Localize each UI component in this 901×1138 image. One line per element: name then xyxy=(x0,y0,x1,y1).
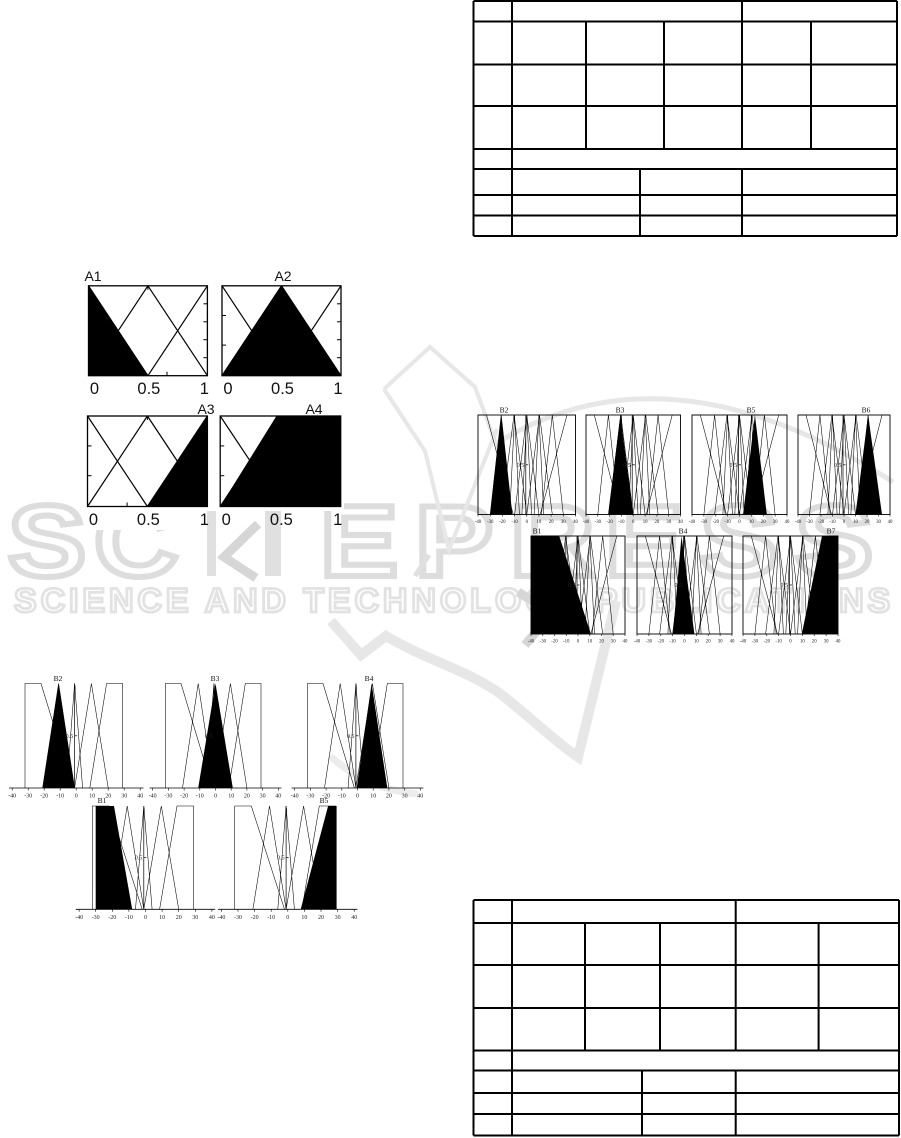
svg-text:B2: B2 xyxy=(500,406,509,415)
svg-text:-40: -40 xyxy=(634,640,641,645)
svg-text:0.5: 0.5 xyxy=(277,856,285,862)
svg-text:-40: -40 xyxy=(583,520,590,525)
svg-text:0.5: 0.5 xyxy=(675,583,683,589)
svg-text:1: 1 xyxy=(789,538,792,544)
svg-text:-20: -20 xyxy=(764,640,771,645)
svg-text:-20: -20 xyxy=(713,520,720,525)
svg-text:30: 30 xyxy=(561,520,566,525)
svg-text:-10: -10 xyxy=(511,520,518,525)
svg-text:-20: -20 xyxy=(251,915,259,921)
svg-text:-20: -20 xyxy=(499,520,506,525)
svg-text:30: 30 xyxy=(121,794,127,800)
svg-text:-10: -10 xyxy=(618,520,625,525)
svg-text:40: 40 xyxy=(137,794,143,800)
svg-text:30: 30 xyxy=(876,520,881,525)
svg-text:-40: -40 xyxy=(291,794,299,800)
svg-text:0.5: 0.5 xyxy=(66,734,74,740)
svg-text:B2: B2 xyxy=(54,674,63,683)
svg-text:-40: -40 xyxy=(528,640,535,645)
svg-text:1: 1 xyxy=(285,808,288,814)
svg-text:B1: B1 xyxy=(533,527,542,536)
svg-text:0: 0 xyxy=(356,794,359,800)
svg-text:40: 40 xyxy=(888,520,893,525)
svg-text:0.5: 0.5 xyxy=(517,463,525,469)
svg-text:40: 40 xyxy=(573,520,578,525)
svg-text:-30: -30 xyxy=(646,640,653,645)
svg-text:10: 10 xyxy=(301,915,307,921)
svg-text:-30: -30 xyxy=(306,794,314,800)
svg-text:20: 20 xyxy=(549,520,554,525)
svg-text:1: 1 xyxy=(355,686,358,692)
svg-text:-20: -20 xyxy=(40,794,48,800)
svg-text:0.5: 0.5 xyxy=(137,511,160,529)
svg-text:1: 1 xyxy=(200,380,209,398)
svg-text:1: 1 xyxy=(576,538,579,544)
svg-text:40: 40 xyxy=(209,915,215,921)
svg-text:10: 10 xyxy=(89,794,95,800)
svg-text:B3: B3 xyxy=(211,674,220,683)
svg-text:30: 30 xyxy=(260,794,266,800)
svg-text:20: 20 xyxy=(706,640,711,645)
svg-text:0.5: 0.5 xyxy=(730,463,738,469)
svg-text:10: 10 xyxy=(228,794,234,800)
svg-text:1: 1 xyxy=(213,686,216,692)
svg-text:1: 1 xyxy=(683,538,686,544)
svg-text:0: 0 xyxy=(144,915,147,921)
svg-text:1: 1 xyxy=(333,380,342,398)
svg-text:B5: B5 xyxy=(747,406,756,415)
svg-text:-40: -40 xyxy=(795,520,802,525)
svg-text:1: 1 xyxy=(842,417,845,423)
svg-text:30: 30 xyxy=(824,640,829,645)
svg-text:40: 40 xyxy=(678,520,683,525)
svg-text:0.5: 0.5 xyxy=(834,463,842,469)
svg-text:20: 20 xyxy=(599,640,604,645)
svg-text:-20: -20 xyxy=(551,640,558,645)
svg-text:30: 30 xyxy=(666,520,671,525)
svg-text:B6: B6 xyxy=(862,406,871,415)
svg-text:SCIENCE AND TECHNOLOGY PUBLICA: SCIENCE AND TECHNOLOGY PUBLICATIONS xyxy=(14,582,894,620)
svg-text:-30: -30 xyxy=(752,640,759,645)
svg-text:30: 30 xyxy=(773,520,778,525)
svg-text:30: 30 xyxy=(718,640,723,645)
svg-text:0.5: 0.5 xyxy=(623,463,631,469)
svg-text:-30: -30 xyxy=(540,640,547,645)
svg-text:-30: -30 xyxy=(24,794,32,800)
svg-text:-40: -40 xyxy=(75,915,83,921)
svg-text:-20: -20 xyxy=(818,520,825,525)
svg-text:A1: A1 xyxy=(84,268,101,284)
svg-text:1: 1 xyxy=(631,417,634,423)
svg-text:1: 1 xyxy=(525,417,528,423)
svg-text:B7: B7 xyxy=(827,527,836,536)
svg-text:30: 30 xyxy=(611,640,616,645)
svg-text:30: 30 xyxy=(402,794,408,800)
svg-text:-40: -40 xyxy=(475,520,482,525)
svg-text:0.5: 0.5 xyxy=(781,583,789,589)
svg-text:0.5: 0.5 xyxy=(568,583,576,589)
svg-text:-30: -30 xyxy=(234,915,242,921)
svg-text:0: 0 xyxy=(286,915,289,921)
svg-text:-10: -10 xyxy=(829,520,836,525)
svg-text:0: 0 xyxy=(214,794,217,800)
svg-text:40: 40 xyxy=(623,640,628,645)
svg-text:10: 10 xyxy=(587,640,592,645)
svg-text:-10: -10 xyxy=(338,794,346,800)
svg-text:40: 40 xyxy=(730,640,735,645)
svg-text:A4: A4 xyxy=(305,401,322,417)
svg-text:-10: -10 xyxy=(775,640,782,645)
svg-text:-30: -30 xyxy=(595,520,602,525)
svg-text:-10: -10 xyxy=(56,794,64,800)
svg-text:-40: -40 xyxy=(740,640,747,645)
svg-text:-30: -30 xyxy=(92,915,100,921)
svg-text:1: 1 xyxy=(333,511,342,529)
svg-text:-10: -10 xyxy=(724,520,731,525)
svg-text:0: 0 xyxy=(89,511,98,529)
svg-text:B1: B1 xyxy=(98,796,107,805)
svg-text:40: 40 xyxy=(785,520,790,525)
svg-text:1: 1 xyxy=(143,808,146,814)
svg-text:-40: -40 xyxy=(149,794,157,800)
svg-text:20: 20 xyxy=(318,915,324,921)
svg-text:-10: -10 xyxy=(669,640,676,645)
svg-text:40: 40 xyxy=(836,640,841,645)
svg-text:-30: -30 xyxy=(701,520,708,525)
svg-text:20: 20 xyxy=(865,520,870,525)
svg-text:20: 20 xyxy=(386,794,392,800)
svg-text:0.5: 0.5 xyxy=(270,511,293,529)
svg-text:0.5: 0.5 xyxy=(347,734,355,740)
svg-text:-30: -30 xyxy=(164,794,172,800)
svg-text:-40: -40 xyxy=(8,794,16,800)
svg-text:10: 10 xyxy=(694,640,699,645)
svg-text:-30: -30 xyxy=(487,520,494,525)
svg-text:0: 0 xyxy=(90,380,99,398)
svg-text:20: 20 xyxy=(176,915,182,921)
svg-text:20: 20 xyxy=(244,794,250,800)
svg-text:40: 40 xyxy=(351,915,357,921)
svg-text:40: 40 xyxy=(275,794,281,800)
svg-text:-10: -10 xyxy=(196,794,204,800)
svg-text:B5: B5 xyxy=(320,796,329,805)
svg-text:0: 0 xyxy=(222,511,231,529)
svg-text:-40: -40 xyxy=(689,520,696,525)
svg-text:0: 0 xyxy=(789,640,792,645)
svg-text:0: 0 xyxy=(75,794,78,800)
svg-text:-20: -20 xyxy=(658,640,665,645)
svg-text:0.5: 0.5 xyxy=(205,734,213,740)
svg-text:10: 10 xyxy=(800,640,805,645)
svg-text:10: 10 xyxy=(749,520,754,525)
svg-text:1: 1 xyxy=(200,511,209,529)
svg-text:0.5: 0.5 xyxy=(137,380,160,398)
svg-text:B4: B4 xyxy=(365,674,374,683)
svg-text:0: 0 xyxy=(223,380,232,398)
svg-text:10: 10 xyxy=(159,915,165,921)
svg-text:10: 10 xyxy=(370,794,376,800)
svg-text:B4: B4 xyxy=(679,527,688,536)
svg-text:1: 1 xyxy=(738,417,741,423)
svg-text:0.5: 0.5 xyxy=(135,856,143,862)
svg-text:-30: -30 xyxy=(806,520,813,525)
svg-text:20: 20 xyxy=(655,520,660,525)
svg-text:10: 10 xyxy=(537,520,542,525)
svg-text:-10: -10 xyxy=(125,915,133,921)
svg-text:20: 20 xyxy=(812,640,817,645)
svg-text:1: 1 xyxy=(74,686,77,692)
svg-text:-40: -40 xyxy=(217,915,225,921)
svg-text:30: 30 xyxy=(192,915,198,921)
svg-text:30: 30 xyxy=(335,915,341,921)
svg-text:A2: A2 xyxy=(274,268,291,284)
svg-text:A3: A3 xyxy=(197,401,214,417)
svg-text:10: 10 xyxy=(643,520,648,525)
svg-text:-20: -20 xyxy=(180,794,188,800)
svg-text:20: 20 xyxy=(761,520,766,525)
svg-text:-10: -10 xyxy=(267,915,275,921)
svg-text:-20: -20 xyxy=(606,520,613,525)
svg-text:-20: -20 xyxy=(108,915,116,921)
svg-text:0: 0 xyxy=(683,640,686,645)
svg-text:0: 0 xyxy=(577,640,580,645)
svg-text:B3: B3 xyxy=(616,406,625,415)
svg-text:-10: -10 xyxy=(563,640,570,645)
svg-text:0.5: 0.5 xyxy=(271,380,294,398)
svg-text:10: 10 xyxy=(853,520,858,525)
svg-text:40: 40 xyxy=(417,794,423,800)
